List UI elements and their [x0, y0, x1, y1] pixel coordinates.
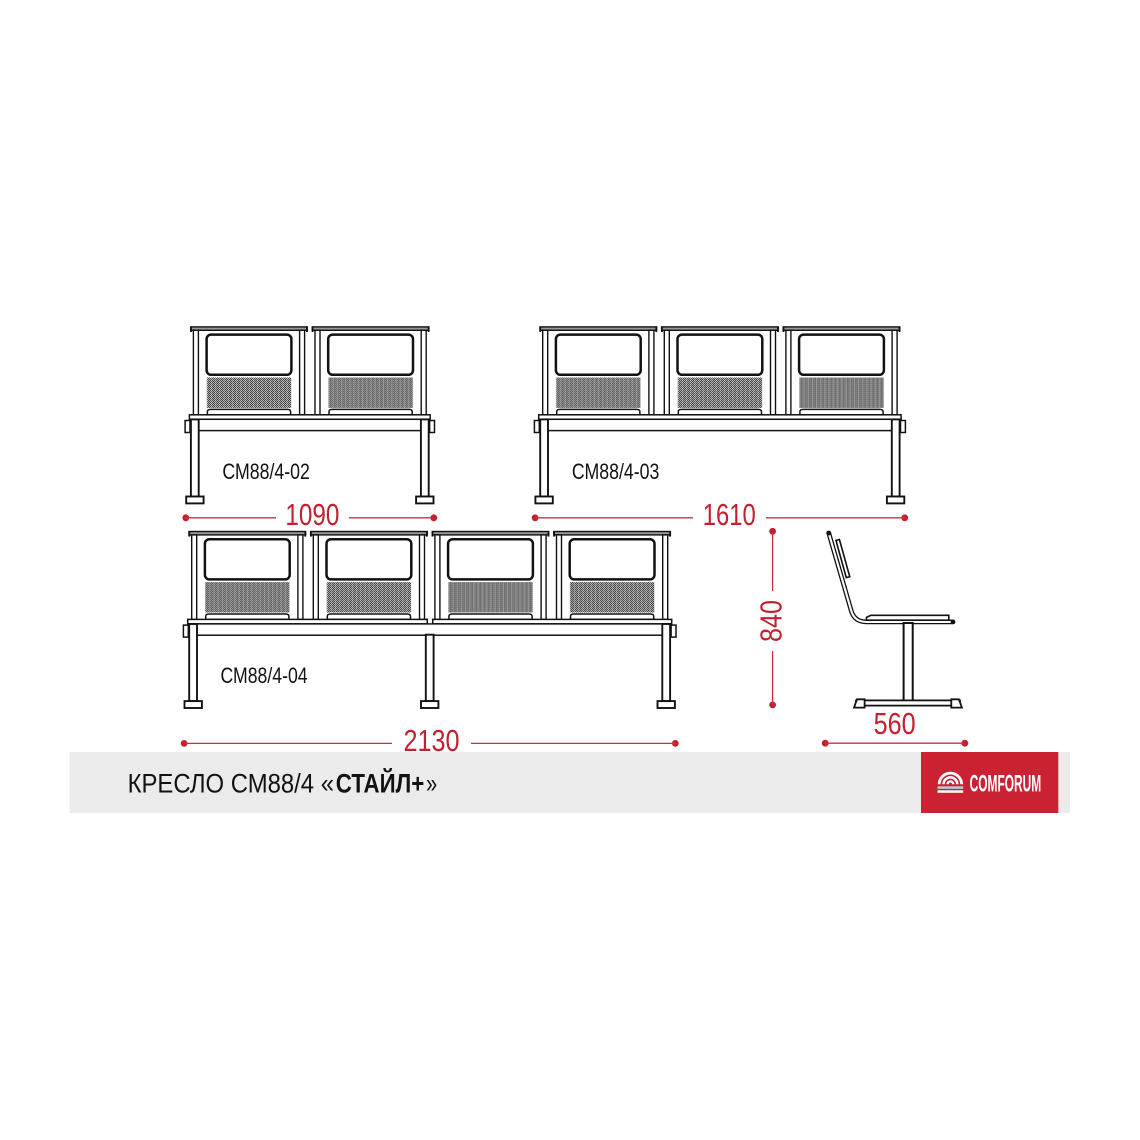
- svg-text:СМ88/4-04: СМ88/4-04: [221, 663, 308, 688]
- svg-text:СМ88/4-03: СМ88/4-03: [572, 459, 660, 484]
- svg-text:СТАЙЛ+: СТАЙЛ+: [336, 768, 424, 799]
- svg-text:»: »: [426, 769, 437, 799]
- svg-text:COMFORUM: COMFORUM: [970, 770, 1042, 797]
- svg-text:1090: 1090: [285, 498, 339, 532]
- svg-text:560: 560: [874, 707, 916, 741]
- svg-text:СМ88/4-02: СМ88/4-02: [222, 459, 310, 484]
- svg-text:840: 840: [754, 600, 788, 642]
- svg-text:1610: 1610: [703, 498, 756, 532]
- svg-text:КРЕСЛО СМ88/4 «: КРЕСЛО СМ88/4 «: [128, 769, 334, 799]
